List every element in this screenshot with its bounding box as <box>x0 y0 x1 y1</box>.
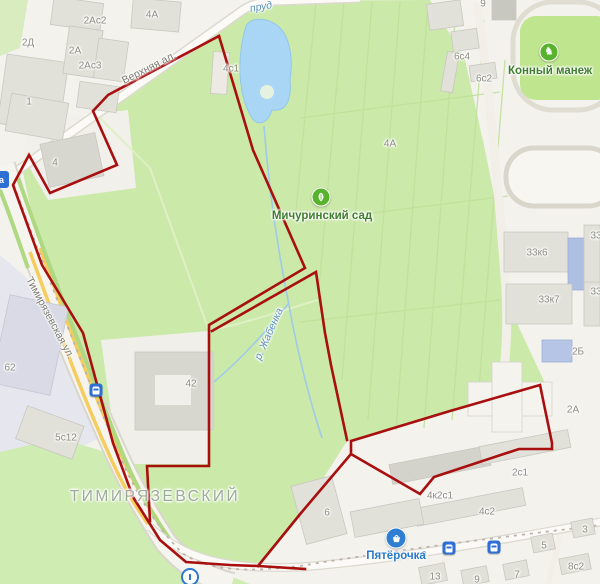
building-label: 2А <box>567 405 579 416</box>
water-label: пруд <box>249 0 273 15</box>
building-label: 2А <box>69 46 81 57</box>
building-label: 4А <box>146 10 158 21</box>
building-label: 33 <box>590 287 600 298</box>
michurinsky-garden-icon[interactable] <box>312 188 331 207</box>
building-label: 9 <box>474 575 480 584</box>
tram-stop-icon[interactable] <box>488 541 501 554</box>
building-label: 8с2 <box>568 562 584 573</box>
building-label: 33к7 <box>538 295 559 306</box>
building-label: 4к2с1 <box>427 491 453 502</box>
building-label: 4с1 <box>223 64 239 75</box>
water-label: р. Жабенка <box>252 306 286 362</box>
horse-arena-icon[interactable]: ♞ <box>540 43 559 62</box>
building-label: 33 <box>590 231 600 242</box>
building-label: 33к6 <box>526 248 547 259</box>
horse-arena-label[interactable]: Конный манеж <box>508 65 592 77</box>
building-label: 3 <box>582 525 588 536</box>
building-label: 42 <box>185 379 196 390</box>
fountain-icon[interactable] <box>181 568 199 584</box>
tram-stop-icon[interactable] <box>443 542 456 555</box>
building-label: 4 <box>52 158 58 169</box>
building-label: 6 <box>324 508 330 519</box>
building-label: 6с2 <box>476 74 492 85</box>
building-label: 7 <box>514 570 520 581</box>
street-label: Верхняя ал. <box>120 49 178 86</box>
building-label: 2Д <box>22 38 34 49</box>
building-label: 62 <box>4 363 15 374</box>
building-label: 9 <box>480 0 486 10</box>
pyaterochka-label[interactable]: Пятёрочка <box>366 550 426 562</box>
street-label: Тимирязевская ул. <box>23 275 76 361</box>
district-label: ТИМИРЯЗЕВСКИЙ <box>70 488 240 506</box>
label-overlay: ТИМИРЯЗЕВСКИЙВерхняя ал.Тимирязевская ул… <box>0 0 600 584</box>
building-label: 2Ас3 <box>79 61 102 72</box>
building-label: 4с2 <box>479 507 495 518</box>
building-label: 6с4 <box>454 52 470 63</box>
michurinsky-garden-label[interactable]: Мичуринский сад <box>272 210 372 222</box>
building-label: 4А <box>384 139 396 150</box>
pyaterochka-icon[interactable] <box>386 528 407 549</box>
building-label: 1 <box>26 97 32 108</box>
map-viewport[interactable]: ТИМИРЯЗЕВСКИЙВерхняя ал.Тимирязевская ул… <box>0 0 600 584</box>
tram-stop-icon[interactable] <box>90 384 103 397</box>
building-label: 5 <box>541 541 547 552</box>
bus-stop-icon[interactable]: a <box>0 171 9 188</box>
building-label: 2Ас2 <box>84 16 107 27</box>
building-label: 5с12 <box>55 433 77 444</box>
building-label: 2Б <box>572 347 584 358</box>
building-label: 13 <box>429 572 440 583</box>
building-label: 2с1 <box>512 468 528 479</box>
